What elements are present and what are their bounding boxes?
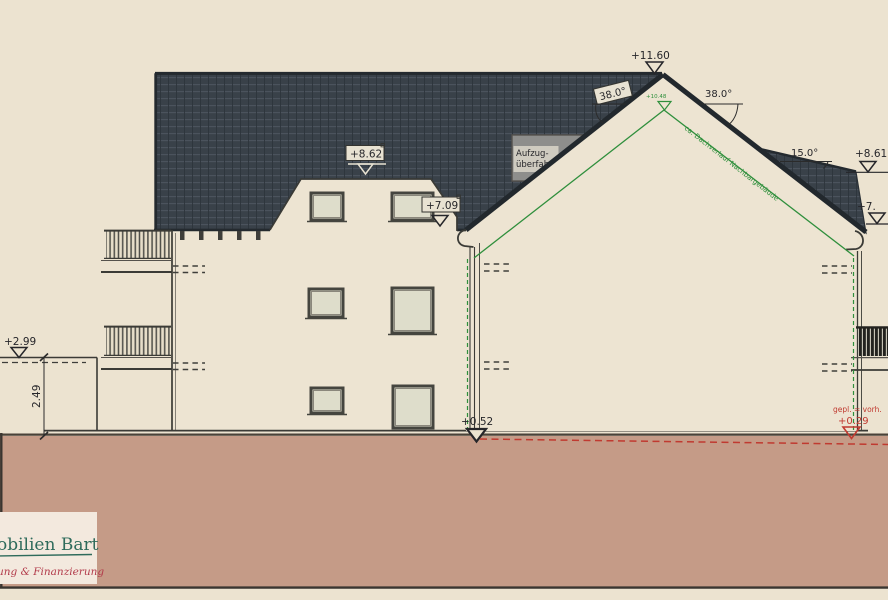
svg-text:+7.: +7. — [857, 201, 876, 213]
ground-section — [0, 433, 888, 588]
ground-fill — [0, 436, 888, 587]
svg-text:+11.60: +11.60 — [631, 50, 670, 62]
svg-text:38.0°: 38.0° — [705, 89, 732, 100]
svg-text:+0.52: +0.52 — [461, 416, 493, 428]
window — [307, 193, 347, 222]
balcony-railing — [858, 328, 888, 356]
elevation-sheet: Aufzug- überfahrt — [0, 0, 888, 600]
level-planned-ground: +0.29 — [838, 416, 869, 427]
logo-name: obilien Bart — [0, 535, 99, 555]
balcony-railing — [106, 231, 170, 258]
svg-text:+2.99: +2.99 — [4, 336, 36, 348]
svg-text:+8.61: +8.61 — [855, 148, 887, 160]
elevator-label-1: Aufzug- — [516, 149, 549, 159]
ground-note: gepl. = vorh. — [833, 405, 882, 414]
elevation-drawing: Aufzug- überfahrt — [0, 0, 888, 600]
window — [307, 388, 347, 415]
svg-text:+8.62: +8.62 — [350, 149, 382, 161]
window — [393, 386, 433, 428]
logo-block: obilien Bart ung & Finanzierung — [0, 512, 104, 584]
svg-text:15.0°: 15.0° — [791, 148, 818, 159]
window — [305, 289, 347, 319]
balcony-railing — [106, 327, 170, 355]
neighbor-ridge-level: +10.48 — [646, 94, 667, 100]
dimension-2-49: 2.49 — [31, 385, 43, 408]
window — [388, 288, 437, 335]
logo-tagline: ung & Finanzierung — [0, 566, 104, 578]
svg-text:+7.09: +7.09 — [426, 200, 458, 212]
